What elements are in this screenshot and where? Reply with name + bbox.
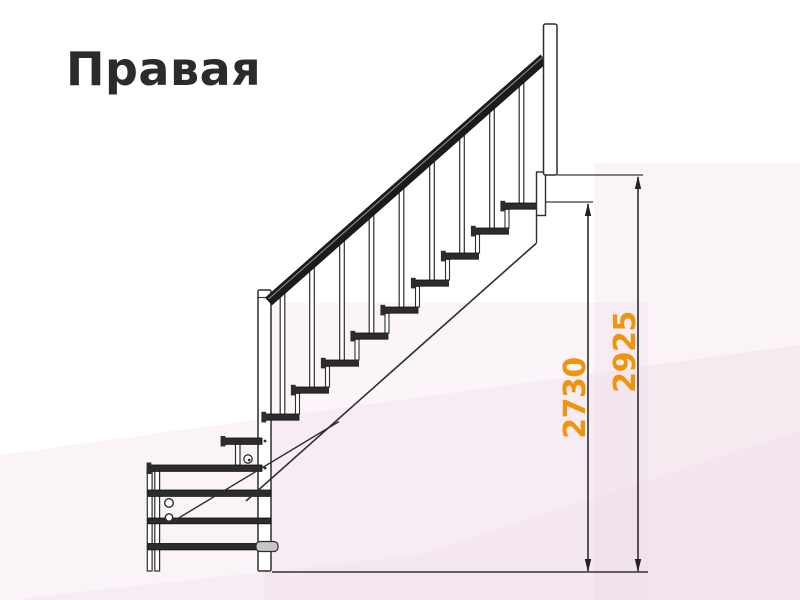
tread-cap [291, 385, 296, 396]
tread [502, 203, 538, 209]
riser [476, 234, 480, 253]
tread-cap [221, 436, 226, 446]
tread [473, 228, 509, 234]
newel-post-top [544, 24, 558, 175]
tread [352, 333, 388, 339]
baluster [460, 134, 465, 255]
hole-icon [165, 514, 172, 521]
riser [416, 286, 420, 307]
tread [222, 438, 262, 444]
newel-post-bottom [258, 290, 271, 571]
tread-cap [500, 201, 505, 212]
baluster [490, 108, 495, 230]
bolt-dot-icon [264, 440, 267, 443]
tread-cap [147, 463, 152, 475]
riser [446, 259, 450, 280]
riser [355, 339, 359, 360]
frame-rail [148, 544, 262, 550]
baluster [430, 161, 435, 282]
tread-cap [321, 358, 326, 369]
baluster [399, 188, 404, 309]
dim-label-2730: 2730 [558, 357, 593, 439]
tread-cap [261, 412, 266, 423]
frame-rail-cap [256, 542, 278, 552]
riser [326, 366, 330, 387]
dim-label-2925: 2925 [608, 311, 643, 393]
tread [413, 280, 449, 286]
landing [537, 172, 546, 244]
baluster [369, 214, 374, 335]
screw-dot-icon [248, 459, 251, 462]
step-support [236, 444, 241, 466]
tread [293, 387, 329, 393]
bolt-dot-icon [264, 467, 267, 470]
tread [323, 360, 359, 366]
handrail-bar [269, 59, 545, 302]
handrail [269, 56, 545, 302]
tread [443, 253, 479, 259]
baluster [310, 267, 315, 389]
riser [385, 313, 389, 333]
landing-fascia [537, 172, 546, 216]
screw-icon [244, 455, 252, 463]
bolt-dot-icon [264, 492, 267, 495]
tread-cap [380, 305, 385, 316]
tread-cap [471, 226, 476, 237]
tread [382, 307, 418, 313]
baluster [340, 240, 345, 362]
tread-cap [411, 278, 416, 289]
arrow-up-icon [585, 203, 591, 216]
tread-cap [350, 331, 355, 342]
post-body [258, 290, 271, 571]
riser [296, 393, 300, 414]
tread [263, 414, 299, 420]
baluster [280, 293, 285, 416]
riser [505, 209, 509, 228]
hole-icon [165, 499, 174, 508]
baluster [519, 82, 524, 205]
tread [148, 465, 262, 471]
staircase-diagram: 2730 2925 [0, 0, 800, 600]
handrail-highlight [269, 56, 545, 299]
tread-cap [441, 251, 446, 262]
